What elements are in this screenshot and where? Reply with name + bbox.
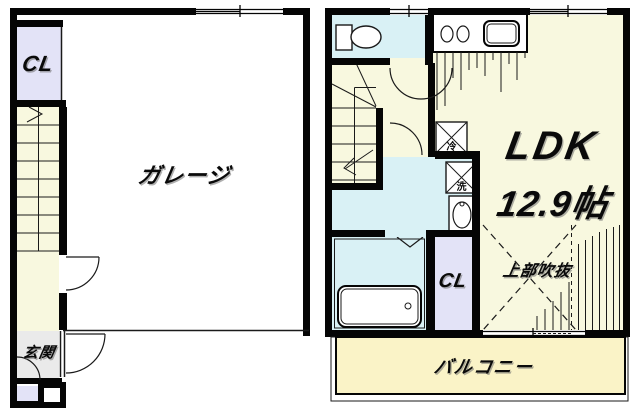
floor1-entrance-step [17, 386, 38, 402]
washer-kanji: 洗 [457, 180, 467, 193]
floor1-thin-lines [61, 27, 310, 377]
ldk-size-label: 12.9帖 [494, 186, 611, 222]
floor-plan: 冷 洗 [0, 0, 640, 418]
bathroom-door-opening [385, 230, 426, 237]
entrance-label: 玄関 [22, 346, 57, 361]
kitchen-counter [433, 14, 527, 52]
bathtub [338, 286, 421, 327]
fridge-box: 冷 [436, 122, 467, 153]
balcony-label: バルコニー [433, 358, 536, 376]
toilet-tank [336, 25, 352, 50]
entrance-door-arc [66, 334, 105, 373]
toilet-fixture [336, 25, 381, 50]
hall-garage-door-arc [66, 257, 99, 290]
floor2-closet-label: CL [437, 271, 469, 291]
garage-label: ガレージ [136, 165, 231, 187]
void-label: 上部吹抜 [502, 264, 573, 280]
toilet-bowl [351, 26, 381, 48]
garage-window [196, 5, 283, 17]
ldk-label: LDK [503, 126, 601, 166]
floor1-closet-label: CL [20, 53, 55, 75]
entrance-porch-pillar-hole [44, 388, 60, 402]
